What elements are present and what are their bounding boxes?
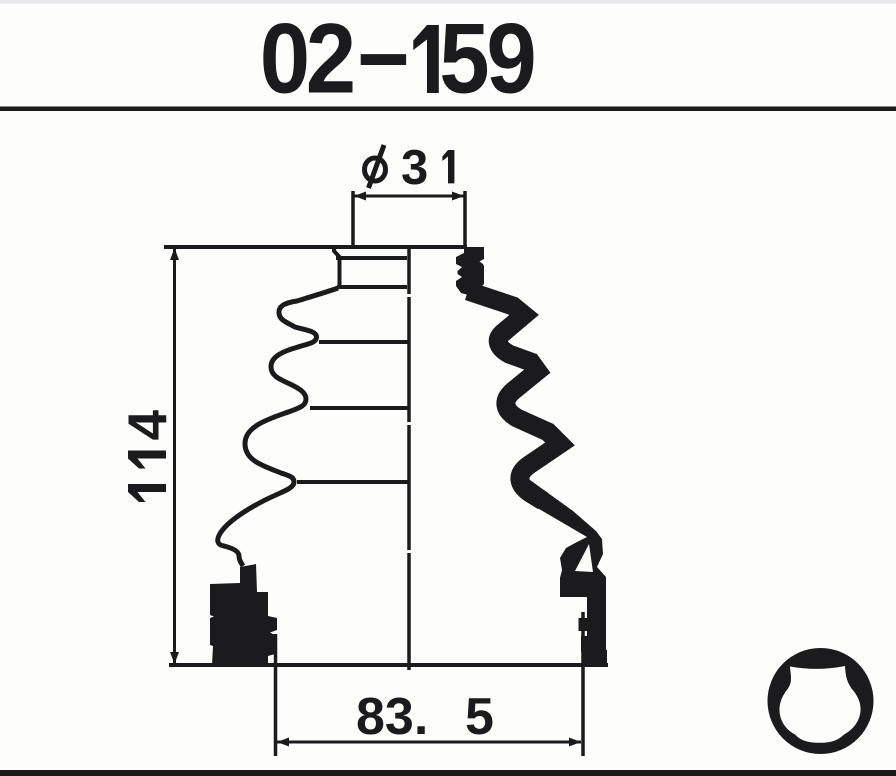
svg-text:0: 0	[260, 4, 310, 115]
svg-text:9: 9	[486, 4, 536, 115]
svg-text:3: 3	[401, 141, 428, 195]
svg-text:2: 2	[306, 4, 356, 115]
svg-text:83.: 83.	[356, 688, 428, 746]
svg-text:−: −	[357, 4, 410, 115]
svg-text:5: 5	[439, 4, 489, 115]
svg-text:5: 5	[465, 688, 494, 746]
svg-text:4: 4	[116, 410, 178, 441]
